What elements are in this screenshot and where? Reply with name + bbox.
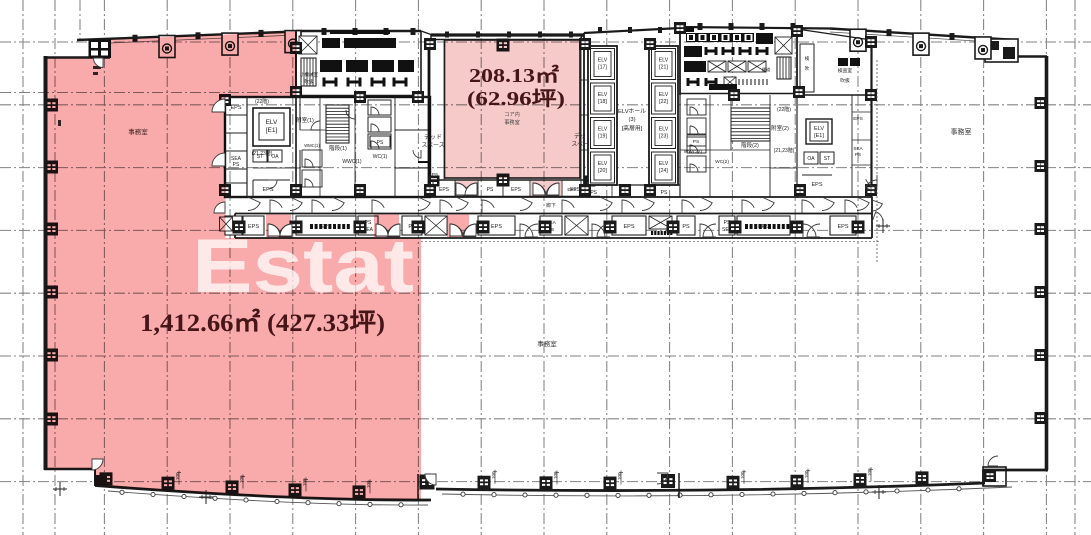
svg-text:階段(1): 階段(1) — [329, 144, 347, 152]
svg-text:PS: PS — [682, 224, 690, 230]
svg-text:EPS: EPS — [491, 224, 502, 230]
svg-text:ELV: ELV — [598, 92, 608, 98]
svg-text:SEA: SEA — [853, 146, 863, 151]
svg-text:[19]: [19] — [598, 134, 607, 140]
svg-text:ELV: ELV — [659, 127, 669, 133]
svg-text:小機械室: 小機械室 — [300, 71, 318, 78]
svg-text:[E1]: [E1] — [266, 127, 278, 134]
svg-text:Estat: Estat — [192, 224, 414, 309]
svg-text:吹抜: 吹抜 — [305, 78, 314, 85]
svg-text:検査室: 検査室 — [838, 67, 853, 74]
svg-text:事務室: 事務室 — [537, 339, 557, 348]
svg-text:[17]: [17] — [598, 65, 607, 71]
svg-text:OA: OA — [271, 154, 279, 160]
svg-text:ST: ST — [824, 156, 830, 162]
svg-text:附室(2): 附室(2) — [771, 124, 789, 132]
svg-text:(22階): (22階) — [777, 106, 791, 113]
svg-text:PS: PS — [487, 187, 494, 193]
svg-text:吹: 吹 — [805, 65, 810, 72]
svg-text:附室(1): 附室(1) — [296, 116, 314, 124]
svg-text:EPS: EPS — [567, 187, 576, 192]
svg-text:煙道: 煙道 — [762, 66, 771, 73]
svg-text:[21]: [21] — [659, 65, 668, 71]
svg-text:ELV: ELV — [598, 127, 608, 133]
svg-text:208.13㎡: 208.13㎡ — [469, 64, 560, 87]
svg-text:EPS: EPS — [837, 224, 848, 230]
svg-text:PS: PS — [693, 139, 699, 145]
svg-text:ELV: ELV — [659, 161, 669, 167]
svg-text:ELV: ELV — [659, 58, 669, 64]
svg-text:(62.96坪): (62.96坪) — [467, 88, 565, 110]
svg-text:PS: PS — [233, 162, 240, 168]
svg-text:WC(2): WC(2) — [715, 159, 729, 165]
svg-text:PS: PS — [377, 140, 384, 146]
svg-text:ELVホール: ELVホール — [618, 108, 646, 115]
svg-text:(3): (3) — [628, 117, 635, 123]
svg-text:1,412.66㎡ (427.33坪): 1,412.66㎡ (427.33坪) — [140, 308, 385, 337]
svg-text:(22階): (22階) — [255, 98, 269, 105]
svg-text:PS: PS — [855, 152, 861, 157]
svg-text:EPS: EPS — [511, 187, 522, 193]
svg-text:WWC(1): WWC(1) — [342, 159, 361, 165]
svg-text:ELV: ELV — [598, 161, 608, 167]
svg-text:EPS: EPS — [623, 224, 634, 230]
svg-text:[18]: [18] — [598, 99, 607, 105]
svg-text:EPS: EPS — [230, 105, 241, 111]
svg-text:[E1]: [E1] — [814, 133, 824, 139]
svg-text:ELV: ELV — [659, 92, 669, 98]
svg-text:ELV: ELV — [266, 119, 278, 126]
svg-text:PS: PS — [661, 190, 668, 196]
svg-text:[20]: [20] — [598, 168, 607, 174]
svg-text:OA: OA — [807, 156, 815, 162]
svg-text:スペース: スペース — [421, 142, 444, 149]
svg-text:[22]: [22] — [659, 99, 668, 105]
svg-text:(21,23階): (21,23階) — [774, 147, 795, 154]
svg-text:事務室: 事務室 — [951, 127, 972, 136]
svg-text:WMC(1): WMC(1) — [304, 143, 320, 148]
svg-text:[24]: [24] — [659, 168, 668, 174]
svg-text:コア内: コア内 — [504, 110, 520, 118]
svg-text:事務室: 事務室 — [128, 127, 148, 136]
svg-text:事務室: 事務室 — [504, 118, 520, 126]
svg-text:デッド: デッド — [424, 133, 442, 141]
svg-text:吹抜: 吹抜 — [840, 77, 850, 84]
svg-text:廊下: 廊下 — [546, 202, 556, 209]
svg-text:階段(2): 階段(2) — [741, 141, 759, 149]
svg-text:検: 検 — [805, 55, 810, 62]
svg-text:ELV: ELV — [814, 126, 824, 132]
svg-text:[高層用]: [高層用] — [622, 124, 643, 132]
svg-text:EPS: EPS — [439, 187, 450, 193]
svg-text:ST: ST — [257, 154, 263, 160]
svg-text:EPS: EPS — [811, 182, 822, 188]
svg-text:WC(1): WC(1) — [373, 154, 388, 160]
svg-text:[23]: [23] — [659, 134, 668, 140]
svg-text:ELV: ELV — [598, 58, 608, 64]
svg-text:EPS: EPS — [853, 116, 863, 122]
